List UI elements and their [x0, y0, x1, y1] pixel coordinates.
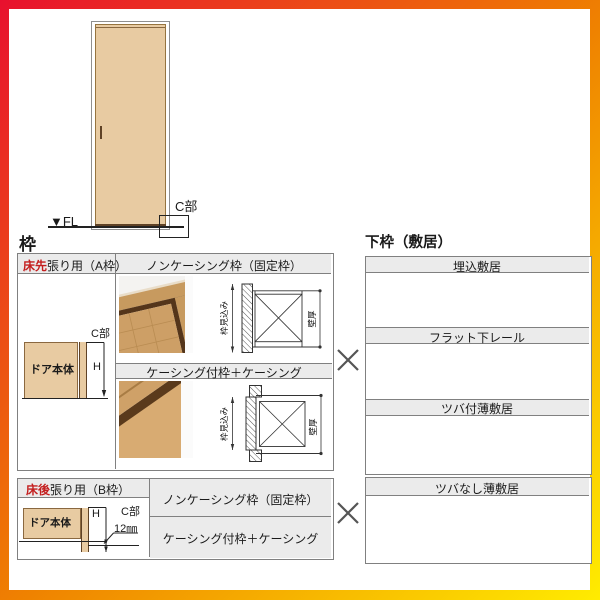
- svg-text:壁厚: 壁厚: [307, 310, 317, 328]
- svg-text:壁厚: 壁厚: [308, 418, 318, 436]
- svg-text:枠見込み: 枠見込み: [220, 407, 229, 442]
- svg-text:枠見込み: 枠見込み: [220, 301, 229, 336]
